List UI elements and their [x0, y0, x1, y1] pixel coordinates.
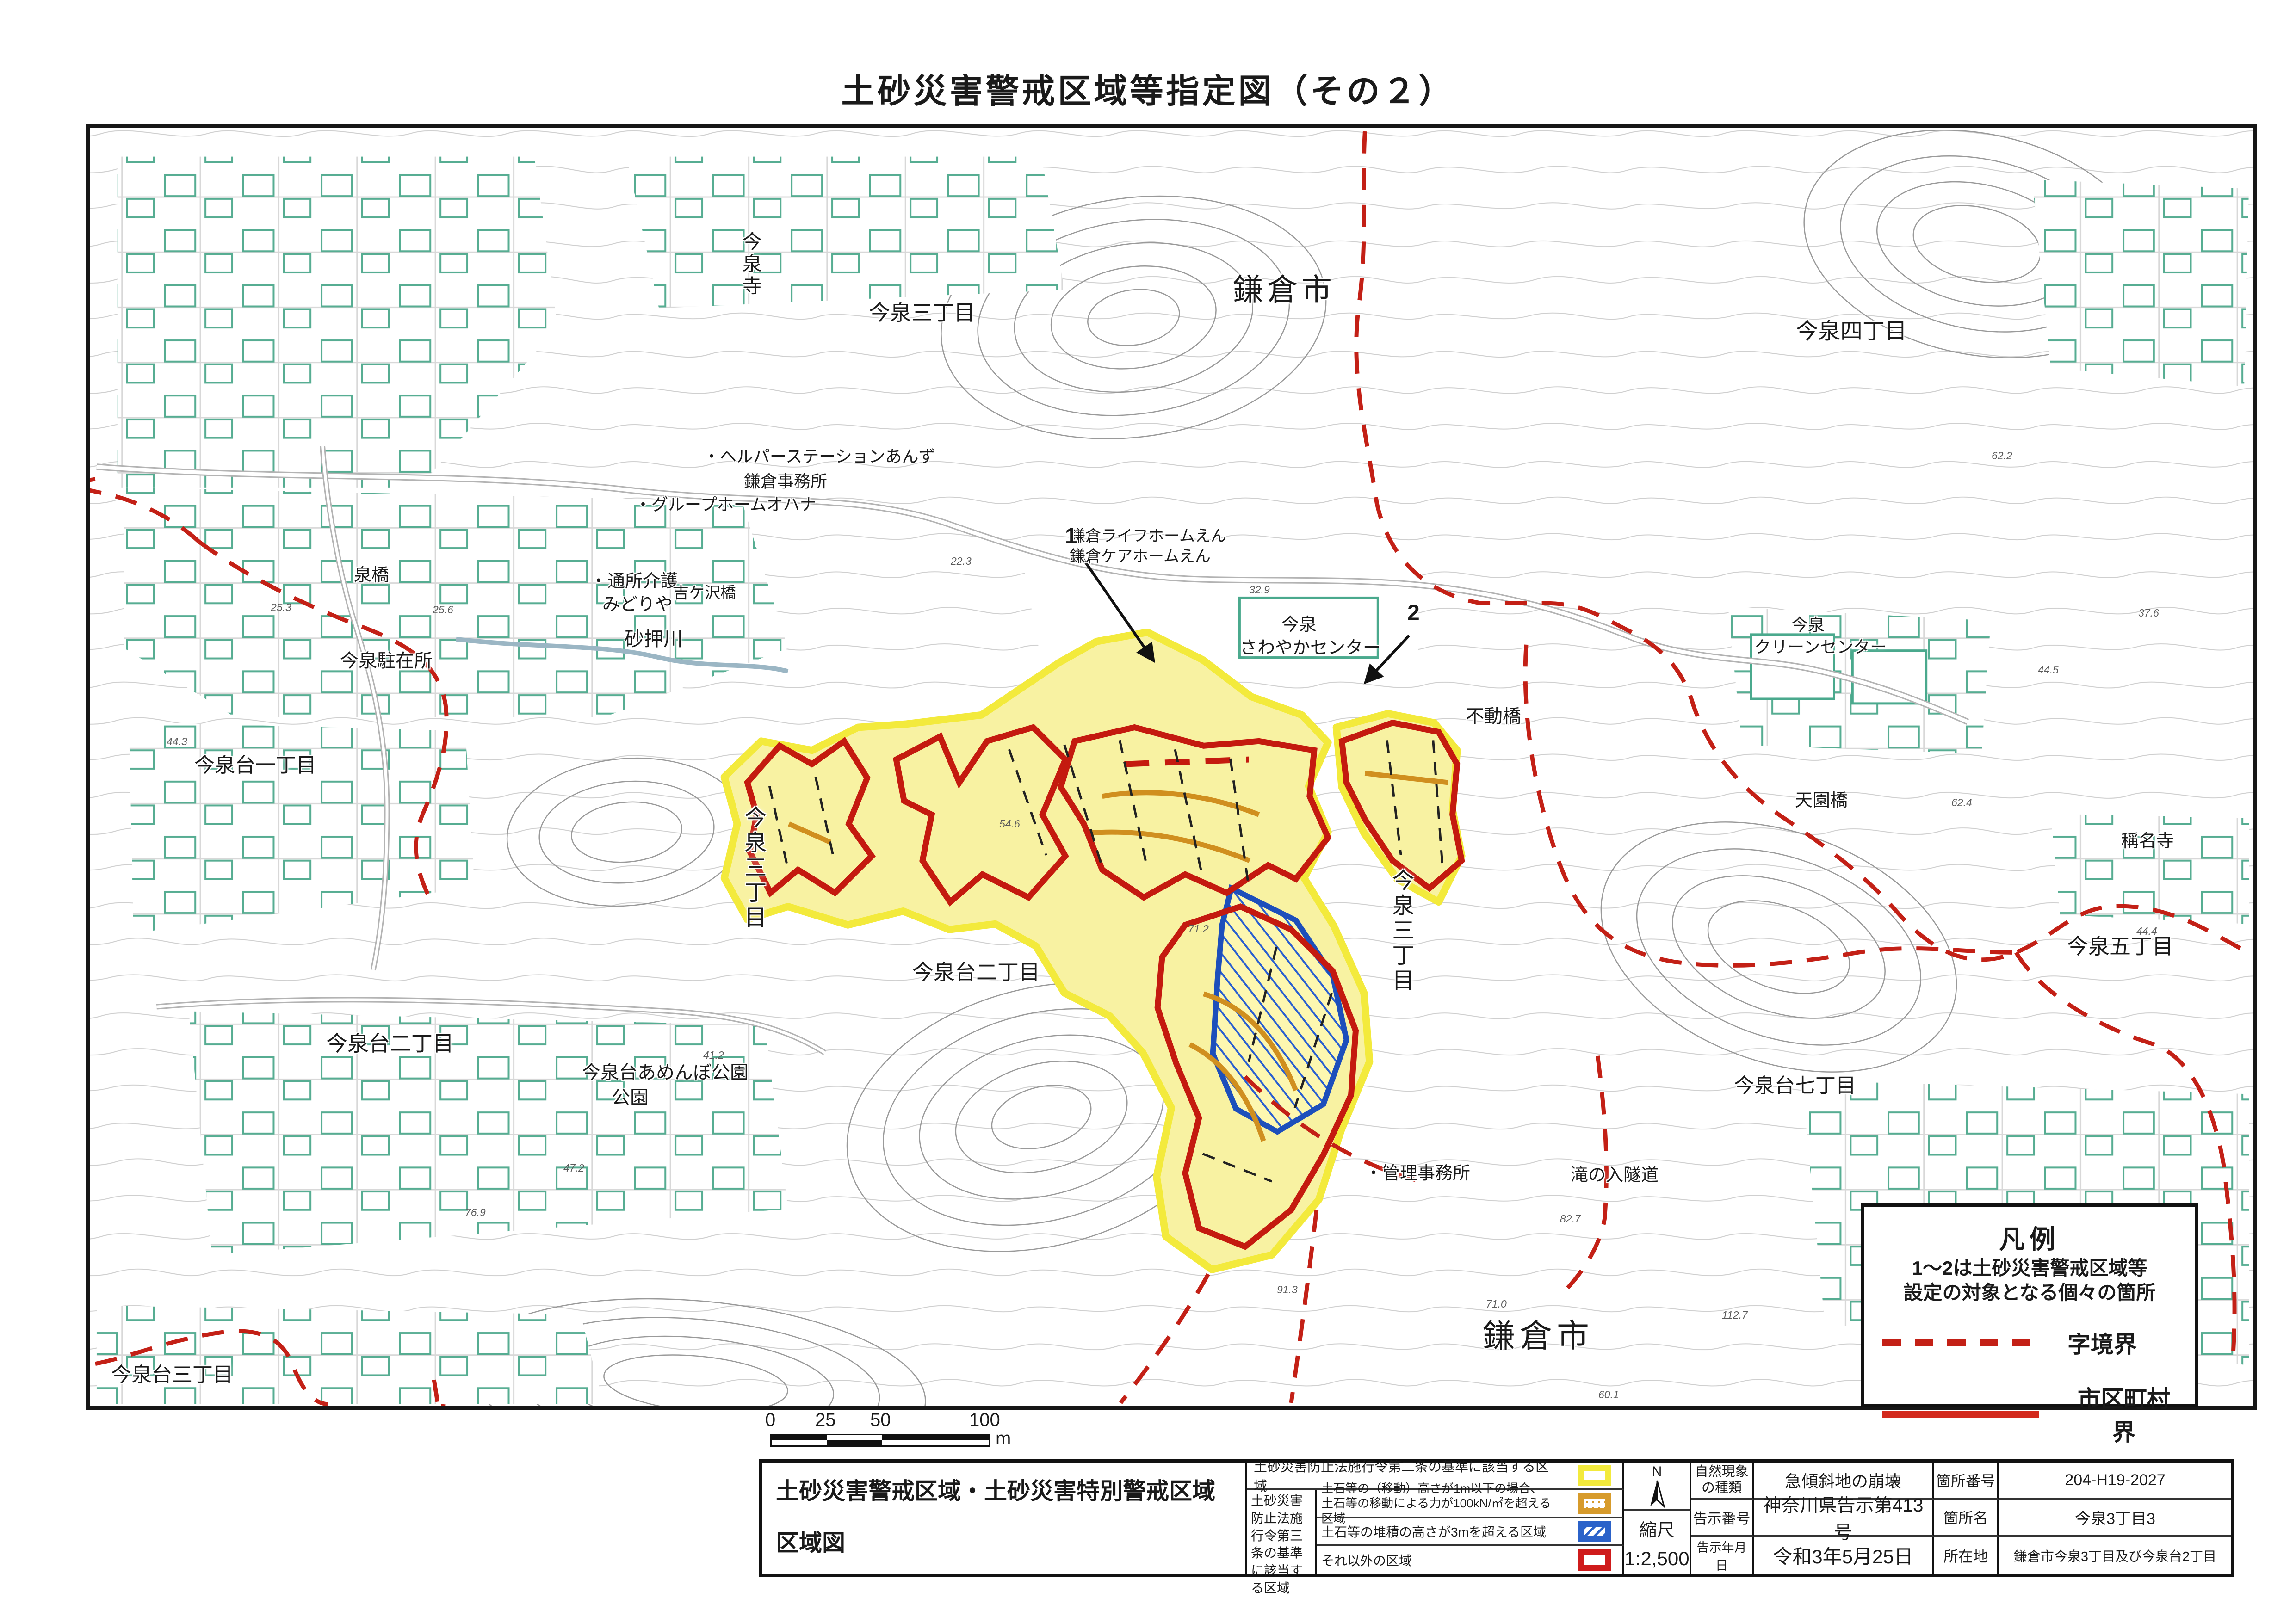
- map-label: 今泉台あめんぼ公園: [582, 1063, 749, 1082]
- map-label: 今泉五丁目: [2067, 935, 2173, 957]
- solid-boundary-label: 市区町村界: [2071, 1381, 2177, 1447]
- scale-tick-100: 100: [969, 1410, 1000, 1431]
- map-label: さわやかセンター: [1240, 639, 1380, 658]
- map-label: 今泉三丁目: [741, 806, 764, 931]
- map-label: 鎌倉市: [1233, 274, 1336, 306]
- map-label: 吉ケ沢橋: [673, 585, 736, 602]
- spot-elevation: 22.3: [951, 555, 972, 568]
- map-label: 今泉駐在所: [340, 651, 433, 671]
- map-label: 鎌倉市: [1483, 1319, 1594, 1353]
- date-value: 令和3年5月25日: [1754, 1537, 1934, 1574]
- scale-tick-25: 25: [815, 1410, 836, 1431]
- sheet-title-line1: 土砂災害警戒区域・土砂災害特別警戒区域: [776, 1473, 1215, 1506]
- spot-elevation: 44.5: [2038, 664, 2059, 676]
- map-label: 泉橋: [354, 567, 389, 585]
- red-zone-swatch: [1578, 1549, 1611, 1571]
- location-value: 鎌倉市今泉3丁目及び今泉台2丁目: [1999, 1537, 2231, 1574]
- page: 土砂災害警戒区域等指定図（その２）: [0, 0, 2296, 1623]
- spot-elevation: 62.4: [1951, 796, 1972, 809]
- map-label: ・通所介護: [590, 573, 678, 591]
- swatch-blue-cell: [1566, 1518, 1624, 1546]
- location-label: 所在地: [1934, 1537, 1999, 1574]
- swatch-red-cell: [1566, 1546, 1624, 1574]
- spot-elevation: 71.0: [1486, 1298, 1507, 1310]
- site-marker-1: 1: [1065, 524, 1077, 549]
- map-label: 鎌倉ライフホームえん: [1070, 528, 1226, 545]
- map-label: ・管理事務所: [1365, 1165, 1470, 1183]
- map-label: 鎌倉事務所: [744, 473, 827, 490]
- date-label: 告示年月日: [1691, 1537, 1754, 1574]
- dashed-boundary-sample: [1882, 1339, 2035, 1346]
- map-label: 今泉四丁目: [1796, 320, 1907, 343]
- blue-zone-swatch: [1578, 1521, 1611, 1542]
- map-label: 鎌倉ケアホームえん: [1070, 549, 1211, 565]
- scale-tick-50: 50: [870, 1410, 891, 1431]
- orange-zone-swatch: [1578, 1493, 1611, 1514]
- legend-row4-text: それ以外の区域: [1317, 1546, 1566, 1574]
- map-label: 今泉: [1791, 616, 1825, 634]
- spot-elevation: 32.9: [1249, 584, 1270, 596]
- map-label: 今泉台一丁目: [194, 755, 316, 776]
- legend-title: 凡例: [1864, 1219, 2195, 1256]
- yellow-zone-swatch: [1578, 1465, 1611, 1486]
- spot-elevation: 91.3: [1277, 1284, 1298, 1296]
- dashed-boundary-label: 字境界: [2067, 1326, 2137, 1359]
- site-marker-2: 2: [1407, 600, 1420, 626]
- scale-value: 1:2,500: [1624, 1548, 1689, 1570]
- map-label: 今泉寺: [740, 231, 761, 298]
- map-label: 公園: [612, 1088, 649, 1107]
- map-label: 滝の入隧道: [1571, 1166, 1659, 1185]
- map-label: 砂押川: [625, 629, 683, 649]
- spot-elevation: 60.1: [1598, 1388, 1619, 1401]
- swatch-orange-cell: [1566, 1490, 1624, 1518]
- spot-elevation: 41.2: [703, 1049, 724, 1061]
- legend-box: 凡例 1〜2は土砂災害警戒区域等 設定の対象となる個々の箇所 字境界 市区町村界: [1861, 1203, 2198, 1407]
- compass-n-label: N: [1652, 1464, 1662, 1480]
- legend-note-line1: 1〜2は土砂災害警戒区域等: [1864, 1256, 2195, 1281]
- legend-row2-text: 土石等の（移動）高さが1m以下の場合、土石等の移動による力が100kN/㎡を超え…: [1317, 1490, 1566, 1518]
- map-label: 今泉台二丁目: [326, 1032, 454, 1055]
- site-name-value: 今泉3丁目3: [1999, 1500, 2231, 1537]
- map-label: 今泉台二丁目: [912, 961, 1040, 983]
- scale-bar-graphic: [770, 1434, 990, 1447]
- notice-value: 神奈川県告示第413号: [1754, 1500, 1934, 1537]
- map-label: 稱名寺: [2121, 833, 2174, 851]
- scale-cell: 縮尺 1:2,500: [1624, 1511, 1691, 1574]
- legend-row3-text: 土石等の堆積の高さが3mを超える区域: [1317, 1518, 1566, 1546]
- compass-cell: N: [1624, 1463, 1691, 1511]
- solid-boundary-sample: [1882, 1411, 2039, 1418]
- map-label: 今泉台七丁目: [1734, 1075, 1856, 1097]
- spot-elevation: 82.7: [1560, 1213, 1581, 1225]
- legend-note-line2: 設定の対象となる個々の箇所: [1864, 1281, 2195, 1305]
- spot-elevation: 25.6: [433, 604, 453, 616]
- spot-elevation: 44.3: [167, 735, 187, 748]
- site-no-label: 箇所番号: [1934, 1463, 1999, 1500]
- spot-elevation: 37.6: [2138, 607, 2159, 619]
- map-label: クリーンセンター: [1754, 638, 1887, 656]
- scale-unit: m: [996, 1428, 1011, 1449]
- map-label: みどりや: [602, 596, 673, 614]
- site-no-value: 204-H19-2027: [1999, 1463, 2231, 1500]
- info-table: 土砂災害警戒区域・土砂災害特別警戒区域 区域図 土砂災害防止法施行令第二条の基準…: [759, 1459, 2234, 1577]
- sheet-title-line2: 区域図: [776, 1524, 845, 1558]
- map-label: 今泉: [1281, 616, 1317, 635]
- scale-bar: 0 25 50 100 m: [759, 1410, 1046, 1454]
- map-label: 天園橋: [1795, 792, 1848, 810]
- swatch-yellow-cell: [1566, 1463, 1624, 1490]
- map-label: 不動橋: [1466, 707, 1521, 726]
- spot-elevation: 76.9: [465, 1206, 486, 1219]
- map-label: 今泉三丁目: [1389, 869, 1412, 994]
- sheet-title-cell: 土砂災害警戒区域・土砂災害特別警戒区域 区域図: [762, 1463, 1247, 1574]
- spot-elevation: 54.6: [999, 818, 1020, 830]
- spot-elevation: 71.2: [1188, 923, 1209, 935]
- map-label: ・グループホームオハナ: [635, 496, 817, 513]
- map-label: 今泉台三丁目: [111, 1364, 233, 1386]
- spot-elevation: 47.2: [563, 1162, 584, 1174]
- scale-tick-0: 0: [765, 1410, 775, 1431]
- scale-label: 縮尺: [1639, 1516, 1674, 1541]
- site-name-label: 箇所名: [1934, 1500, 1999, 1537]
- north-arrow-icon: [1646, 1480, 1668, 1508]
- page-title: 土砂災害警戒区域等指定図（その２）: [0, 64, 2296, 112]
- map-label: 今泉三丁目: [869, 302, 975, 324]
- legend-group-label: 土砂災害防止法施行令第三条の基準に該当する区域: [1247, 1490, 1317, 1574]
- nature-label: 自然現象の種類: [1691, 1463, 1754, 1500]
- spot-elevation: 112.7: [1722, 1309, 1748, 1321]
- spot-elevation: 25.3: [271, 601, 291, 614]
- spot-elevation: 62.2: [1992, 450, 2012, 462]
- notice-label: 告示番号: [1691, 1500, 1754, 1537]
- map-label: ・ヘルパーステーションあんず: [703, 448, 935, 465]
